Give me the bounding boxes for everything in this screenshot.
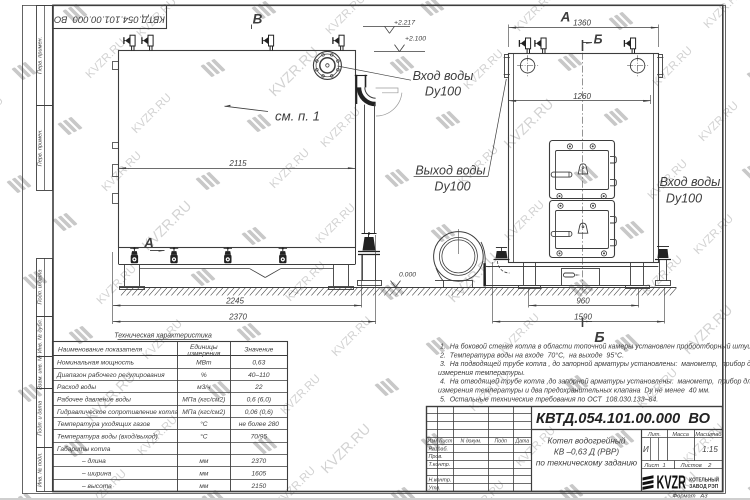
svg-text:Формат А3: Формат А3 <box>673 493 709 499</box>
svg-text:5. Остальные технические треб: 5. Остальные технические требования по О… <box>440 395 658 403</box>
svg-text:Масштаб: Масштаб <box>695 432 722 438</box>
svg-text:Рабочее давление воды: Рабочее давление воды <box>57 395 131 403</box>
svg-text:Разраб.: Разраб. <box>429 446 449 452</box>
svg-text:°С: °С <box>200 420 208 428</box>
svg-text:Инв. № подл.: Инв. № подл. <box>38 452 44 487</box>
svg-text:1360: 1360 <box>573 19 591 28</box>
svg-text:1605: 1605 <box>252 471 267 478</box>
svg-text:МВт: МВт <box>196 359 212 366</box>
svg-text:И: И <box>643 445 649 454</box>
svg-text:Вход воды: Вход воды <box>660 175 721 189</box>
svg-text:Подп. и дата: Подп. и дата <box>38 269 44 304</box>
svg-text:Диапазон рабочего регулировани: Диапазон рабочего регулирования <box>56 371 165 379</box>
svg-text:Лит.: Лит. <box>647 432 661 438</box>
svg-text:22: 22 <box>254 384 263 391</box>
svg-text:2370: 2370 <box>251 458 267 465</box>
svg-text:по техническому заданию: по техническому заданию <box>536 458 637 467</box>
svg-text:Б: Б <box>594 330 604 346</box>
svg-text:измерения температуры и два пр: измерения температуры и два предохраните… <box>438 387 710 395</box>
svg-text:Dy100: Dy100 <box>425 85 461 99</box>
svg-text:Утв.: Утв. <box>428 485 441 491</box>
svg-text:960: 960 <box>576 297 590 306</box>
svg-text:Габариты котла: Габариты котла <box>57 445 111 453</box>
svg-text:0,06 (0,6): 0,06 (0,6) <box>245 409 273 416</box>
svg-text:КВТД.054.101.00.000 ВО: КВТД.054.101.00.000 ВО <box>536 410 710 427</box>
svg-text:Выход воды: Выход воды <box>415 164 485 178</box>
svg-text:°С: °С <box>200 433 208 441</box>
svg-text:МПа (кгс/см2): МПа (кгс/см2) <box>182 396 225 403</box>
svg-text:Температура воды (вход/выход): Температура воды (вход/выход) <box>57 433 158 441</box>
svg-text:Dy100: Dy100 <box>666 192 702 206</box>
svg-text:Взам. инв. №: Взам. инв. № <box>38 355 44 390</box>
svg-text:Изм: Изм <box>427 438 437 444</box>
svg-text:не более 280: не более 280 <box>239 420 280 428</box>
svg-text:А: А <box>560 10 571 25</box>
svg-text:мм: мм <box>199 471 209 478</box>
svg-text:МПа (кгс/см2): МПа (кгс/см2) <box>182 409 225 416</box>
svg-text:Листов 2: Листов 2 <box>680 463 713 469</box>
svg-text:КВТД.054.101.00.000 ВО: КВТД.054.101.00.000 ВО <box>53 14 165 25</box>
svg-text:Подп. и дата: Подп. и дата <box>38 401 44 436</box>
svg-text:Б: Б <box>594 33 603 47</box>
svg-text:2150: 2150 <box>251 483 267 490</box>
svg-text:Лист: Лист <box>438 438 453 444</box>
svg-text:Вход воды: Вход воды <box>413 69 474 83</box>
svg-text:Н.контр.: Н.контр. <box>429 478 452 484</box>
svg-text:Перв. примен.: Перв. примен. <box>38 37 44 74</box>
svg-text:КВ –0,63 Д (РВР): КВ –0,63 Д (РВР) <box>554 447 619 456</box>
svg-text:мм: мм <box>199 483 209 490</box>
svg-text:Дата: Дата <box>514 438 529 444</box>
svg-text:2115: 2115 <box>228 159 247 168</box>
svg-text:N докум.: N докум. <box>461 438 482 444</box>
svg-text:см. п. 1: см. п. 1 <box>275 109 320 124</box>
svg-text:0,63: 0,63 <box>252 359 265 366</box>
svg-text:Техническая характеристика: Техническая характеристика <box>114 333 212 340</box>
svg-text:Лист 1: Лист 1 <box>643 463 665 469</box>
svg-text:Пров.: Пров. <box>429 454 443 460</box>
svg-text:Котел водогрейный: Котел водогрейный <box>548 436 626 445</box>
svg-text:0,6 (6,0): 0,6 (6,0) <box>247 396 272 403</box>
svg-text:измерения температуры.: измерения температуры. <box>438 370 525 377</box>
svg-text:Расход воды: Расход воды <box>57 383 96 391</box>
svg-text:2370: 2370 <box>228 313 247 322</box>
svg-text:Номинальная мощность: Номинальная мощность <box>57 359 135 366</box>
svg-text:Наименование показателя: Наименование показателя <box>58 347 143 354</box>
svg-text:Т.контр.: Т.контр. <box>429 462 451 468</box>
svg-text:3. На подводящей трубе котла: 3. На подводящей трубе котла , до запорн… <box>440 360 750 368</box>
svg-text:КОТЕЛЬНЫЙ: КОТЕЛЬНЫЙ <box>689 475 719 483</box>
svg-text:Значение: Значение <box>244 347 273 354</box>
svg-text:ЗАВОД РЭП: ЗАВОД РЭП <box>689 484 718 490</box>
svg-text:м3/ч: м3/ч <box>197 384 211 391</box>
svg-text:1590: 1590 <box>574 313 592 322</box>
svg-text:+2.217: +2.217 <box>394 20 415 27</box>
svg-text:1260: 1260 <box>573 92 591 101</box>
svg-text:Подп: Подп <box>495 438 508 444</box>
svg-text:измерения: измерения <box>187 350 220 357</box>
svg-text:А: А <box>143 236 154 251</box>
svg-text:2245: 2245 <box>225 297 244 306</box>
svg-text:Гидравлическое сопротивление к: Гидравлическое сопротивление котла <box>57 408 178 416</box>
svg-text:Dy100: Dy100 <box>434 180 470 194</box>
svg-text:В: В <box>253 12 263 27</box>
svg-text:Масса: Масса <box>672 432 689 438</box>
svg-text:Перв. примен.: Перв. примен. <box>38 129 44 166</box>
svg-text:2. Температура воды на входе: 2. Температура воды на входе 70°С, на вы… <box>439 351 624 359</box>
svg-text:0.000: 0.000 <box>399 272 416 279</box>
svg-text:– ширина: – ширина <box>81 471 112 478</box>
svg-text:Температура уходящих газов: Температура уходящих газов <box>57 420 150 428</box>
svg-text:Инв. № дубл.: Инв. № дубл. <box>38 319 44 353</box>
svg-text:мм: мм <box>199 458 209 465</box>
svg-text:KVZR: KVZR <box>657 472 687 493</box>
svg-text:%: % <box>201 372 207 379</box>
svg-text:4. На отводящей трубе котла ,: 4. На отводящей трубе котла ,до запорной… <box>440 378 750 386</box>
svg-text:70/95: 70/95 <box>251 434 268 441</box>
svg-text:– длина: – длина <box>81 457 106 465</box>
svg-text:– высота: – высота <box>81 483 112 490</box>
svg-text:+2.100: +2.100 <box>405 36 426 43</box>
svg-text:1:15: 1:15 <box>702 445 718 454</box>
svg-text:40–110: 40–110 <box>248 372 270 379</box>
